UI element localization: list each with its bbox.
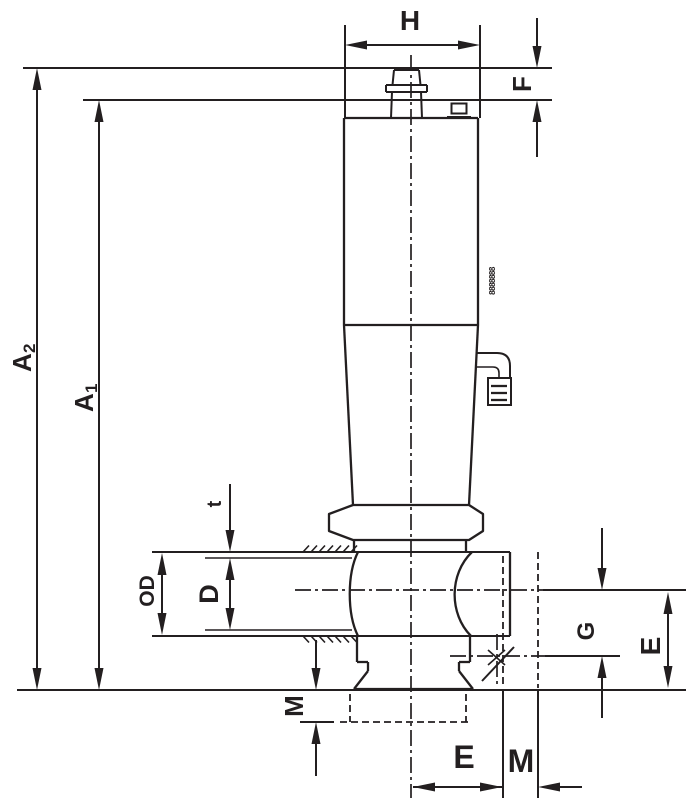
label-f: F [507, 76, 537, 92]
label-m-left-text: M [279, 695, 309, 717]
arrowhead-down [664, 666, 673, 688]
bottom-outlet [354, 636, 473, 689]
label-d-text: D [194, 584, 224, 604]
label-od-text: OD [136, 575, 159, 607]
centerlines [295, 55, 686, 798]
arrowhead-up [533, 100, 542, 122]
arrowhead-left [345, 41, 367, 50]
arrowhead-up [598, 656, 607, 678]
dimension-d: D [194, 558, 235, 630]
dimension-e-m-bottom: E M [413, 690, 582, 798]
dimension-m-left: M [279, 640, 334, 776]
label-m-bottom: M [508, 743, 535, 779]
grub-screw-detail [476, 353, 511, 405]
handle-taper-left [344, 325, 353, 505]
arrowhead-left-outside [538, 783, 560, 792]
arrowhead-down [226, 608, 235, 630]
arrowhead-right [458, 41, 480, 50]
arrowhead-down [533, 46, 542, 68]
arrowhead-down [95, 668, 104, 690]
arrowhead-down [158, 613, 167, 635]
label-d: D [194, 584, 224, 604]
dimension-a2: A 2 [7, 68, 42, 690]
spindle-cap-right [419, 70, 421, 85]
arrowhead-up [226, 558, 235, 580]
arrowhead-right [480, 783, 502, 792]
screw-elbow-inner [476, 367, 499, 378]
dimension-t: t [204, 484, 235, 552]
drain-slot-line [482, 647, 514, 681]
dimension-e-right: E [635, 592, 673, 688]
label-f-text: F [507, 76, 537, 92]
arrowhead-up [95, 100, 104, 122]
spindle-shank-left [391, 92, 392, 118]
label-g: G [573, 622, 600, 641]
label-t-text: t [204, 500, 226, 507]
ball-chamber-right-arc [455, 552, 472, 636]
square-section-symbol [447, 104, 471, 118]
technical-drawing-page: A 2 A 1 H F [0, 0, 686, 800]
label-a2: A 2 [7, 344, 39, 372]
collar [329, 505, 483, 540]
dimension-f: F [507, 18, 542, 157]
label-a2-sub: 2 [20, 344, 39, 353]
arrowhead-left [413, 783, 435, 792]
label-e-right-text: E [635, 637, 666, 656]
label-a1: A 1 [69, 384, 101, 412]
arrowhead-down [312, 668, 321, 690]
label-t: t [204, 500, 226, 507]
handle: 8888888 [344, 118, 511, 505]
label-a1-base: A [69, 393, 99, 412]
arrowhead-up [33, 68, 42, 90]
dimension-od: OD [136, 553, 167, 635]
dimension-a1: A 1 [69, 100, 104, 690]
label-m-left: M [279, 695, 309, 717]
arrowhead-down [226, 530, 235, 552]
arrowhead-up [312, 722, 321, 744]
label-od: OD [136, 575, 159, 607]
label-e-bottom: E [453, 739, 474, 775]
spindle [386, 70, 427, 118]
square-symbol-box [452, 104, 467, 114]
label-a1-sub: 1 [82, 384, 101, 393]
screw-elbow-outer [476, 353, 510, 378]
valve-dimension-drawing: A 2 A 1 H F [0, 0, 686, 800]
ball-chamber-left-arc [350, 552, 358, 636]
label-e-right: E [635, 637, 666, 656]
handle-stamp: 8888888 [488, 266, 497, 295]
arrowhead-up [664, 592, 673, 614]
label-h: H [400, 5, 420, 36]
arrowhead-down [598, 568, 607, 590]
reference-lines [17, 68, 686, 690]
valve-body [152, 546, 545, 690]
arrowhead-down [33, 668, 42, 690]
dimension-h: H [345, 5, 480, 118]
handle-stamp-text: 8888888 [488, 266, 497, 295]
label-a2-base: A [7, 353, 37, 372]
arrowhead-up [158, 553, 167, 575]
label-g-text: G [573, 622, 600, 641]
spindle-shank-right [421, 92, 422, 118]
spindle-cap-left [393, 70, 395, 85]
